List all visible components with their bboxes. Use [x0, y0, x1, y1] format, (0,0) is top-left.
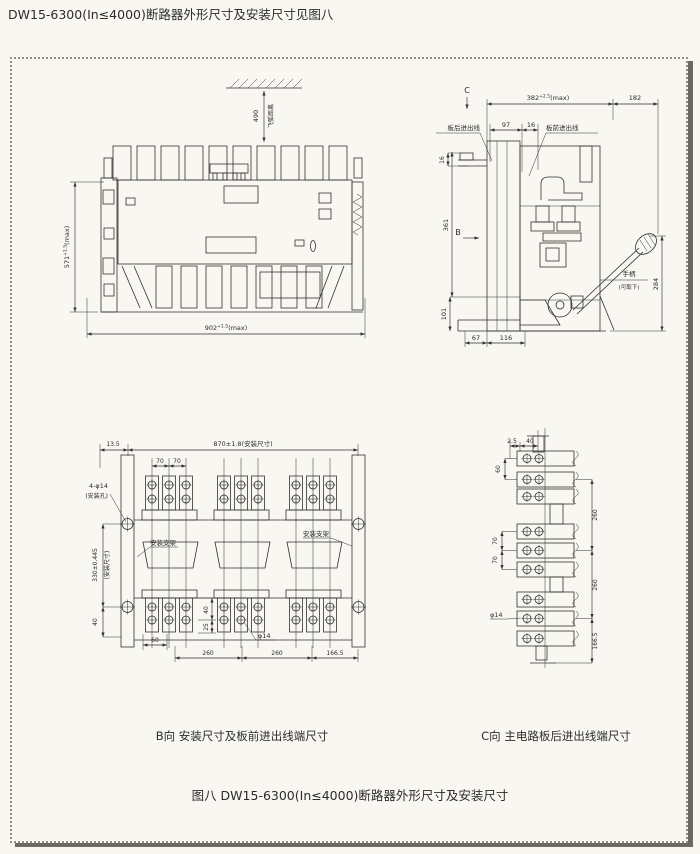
rear-wiring-label: 板后进出线	[448, 123, 481, 132]
view-b-marker: B	[455, 228, 461, 237]
spring-zigzag	[353, 194, 362, 235]
dim-height: 571+1.5(max)	[63, 226, 72, 269]
dim-284: 284	[652, 278, 660, 290]
dim-67: 67	[472, 334, 480, 342]
dim-2-5: 2.5	[507, 438, 517, 445]
handle	[573, 230, 661, 314]
front-body	[101, 178, 363, 312]
dim-c-166-5: 166.5	[592, 632, 599, 649]
b-view-caption: B向 安装尺寸及板前进出线端尺寸	[156, 729, 329, 743]
dim-16-top: 16	[527, 121, 535, 129]
handle-label: 手柄	[623, 269, 637, 278]
dim-101: 101	[440, 308, 448, 320]
b-top-pads	[142, 476, 341, 520]
dim-260-a: 260	[202, 650, 214, 657]
arc-gap-label: 飞弧距离	[267, 104, 275, 128]
dim-40: 40	[526, 438, 534, 445]
mounting-brackets	[120, 455, 366, 647]
dim-97: 97	[502, 121, 510, 129]
dim-70-a: 70	[156, 458, 164, 465]
dim-c-70-b: 70	[492, 556, 499, 564]
dim-width: 902+1.5(max)	[205, 324, 248, 333]
dim-260-b: 260	[271, 650, 283, 657]
b-view-drawing: 13.5 870±1.8(安装尺寸) 70 70	[85, 439, 366, 662]
dim-c-70-a: 70	[492, 537, 499, 545]
ceiling-hatch	[226, 79, 302, 88]
figure-caption: 图八 DW15-6300(In≤4000)断路器外形尺寸及安装尺寸	[192, 788, 509, 803]
c-hole-dia-label: φ14	[490, 611, 503, 619]
dim-166-5: 166.5	[326, 650, 343, 657]
front-wiring-label: 板前进出线	[546, 123, 579, 132]
dim-60: 60	[151, 637, 159, 644]
side-view-drawing: C 382+2.5(max) 182 97 16 板后进出线 板前进出线 16	[436, 86, 666, 347]
dim-arc-gap: 490	[252, 110, 260, 122]
handle-note: (可取下)	[619, 284, 640, 291]
dim-182: 182	[629, 94, 641, 102]
bracket-label-left: 安装支架	[150, 538, 177, 547]
dim-330-note: (安装尺寸)	[103, 551, 111, 580]
c-view-drawing: 2.5 40	[490, 428, 599, 668]
dim-25: 25	[203, 623, 210, 631]
dim-c-260-b: 260	[592, 579, 599, 591]
dim-13-5: 13.5	[106, 441, 120, 448]
front-top-terminals	[104, 146, 362, 180]
c-terminal-pads	[517, 451, 578, 663]
side-body	[458, 141, 661, 331]
front-view-drawing: 490 飞弧距离	[63, 79, 366, 338]
technical-drawing-canvas: DW15-6300(In≤4000)断路器外形尺寸及安装尺寸见图八 490 飞弧…	[0, 0, 700, 854]
dim-361: 361	[442, 219, 450, 231]
dim-40-hole: 40	[203, 606, 210, 614]
dim-c-260-a: 260	[592, 509, 599, 521]
mount-holes-label: 4-φ14	[89, 482, 108, 490]
bracket-label-right: 安装支架	[303, 529, 330, 538]
front-bottom-terminals	[101, 266, 363, 312]
mount-holes-note: (安装孔)	[85, 492, 108, 500]
page-title: DW15-6300(In≤4000)断路器外形尺寸及安装尺寸见图八	[8, 7, 334, 22]
view-c-marker: C	[464, 86, 470, 95]
terminal-hook	[541, 177, 582, 200]
dim-116: 116	[500, 334, 512, 342]
dim-depth: 382+2.5(max)	[527, 94, 570, 103]
dim-16-left: 16	[439, 156, 446, 164]
dim-330: 330±0.445	[92, 548, 99, 582]
c-view-caption: C向 主电路板后进出线端尺寸	[481, 729, 631, 743]
hole-dia-label: φ14	[258, 632, 271, 640]
dim-870: 870±1.8(安装尺寸)	[213, 439, 272, 448]
b-bottom-pads	[134, 590, 352, 640]
dim-c-60: 60	[495, 465, 502, 473]
dim-40-left: 40	[92, 618, 99, 626]
dim-70-b: 70	[173, 458, 181, 465]
